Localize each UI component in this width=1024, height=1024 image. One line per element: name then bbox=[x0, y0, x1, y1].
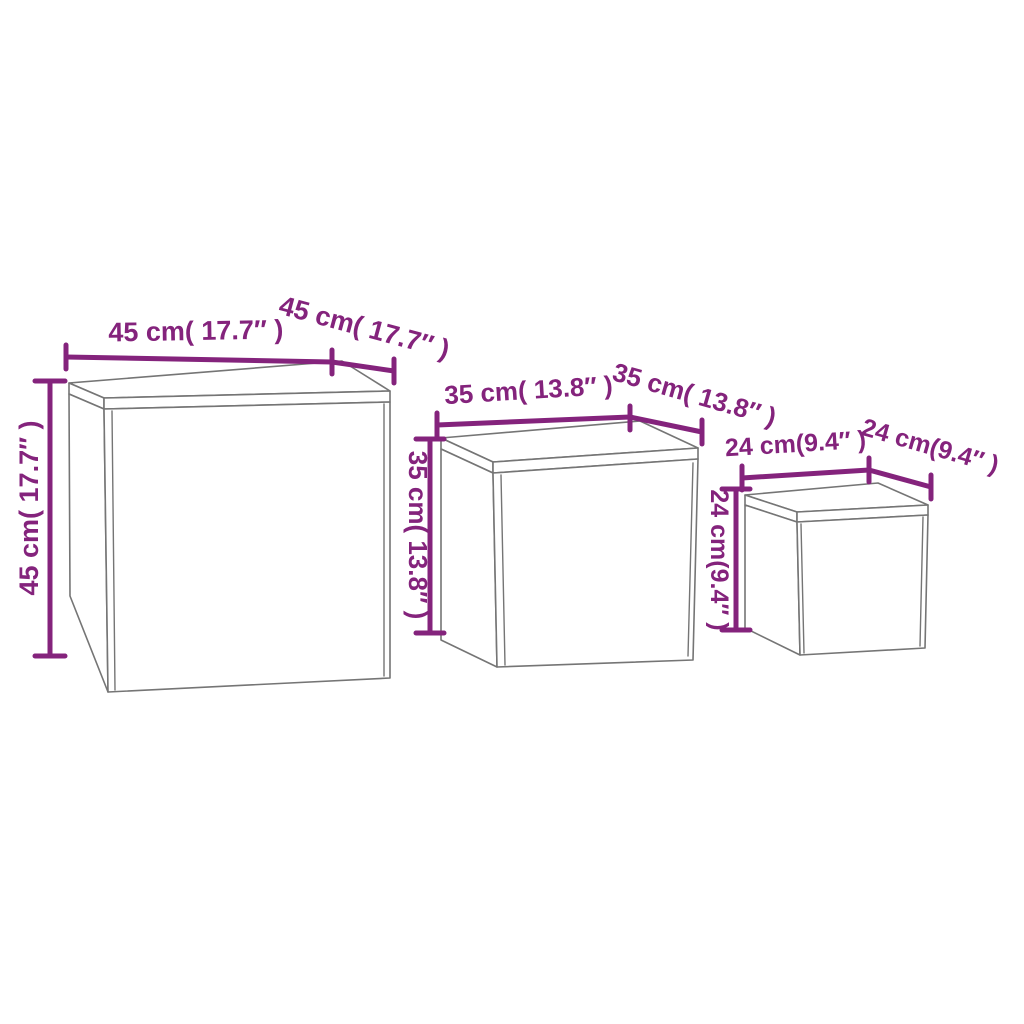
product-dimension-image: 45 cm( 17.7″ ) 45 cm( 17.7″ ) 45 cm( 17.… bbox=[0, 0, 1024, 1024]
small-height-dimension-label: 24 cm(9.4″ ) bbox=[705, 489, 733, 630]
large-table-left-side-face bbox=[69, 394, 108, 692]
medium-table-drawing bbox=[441, 421, 698, 667]
large-table-drawing bbox=[69, 361, 390, 692]
medium-table-left-side-face bbox=[441, 449, 497, 667]
large-width-dimension-label: 45 cm( 17.7″ ) bbox=[108, 314, 284, 347]
medium-width-dimension-label: 35 cm( 13.8″ ) bbox=[443, 370, 613, 410]
small-width-dimension-label: 24 cm(9.4″ ) bbox=[724, 426, 867, 463]
small-table-drawing bbox=[745, 483, 928, 655]
nesting-tables-dimension-diagram: 45 cm( 17.7″ ) 45 cm( 17.7″ ) 45 cm( 17.… bbox=[0, 0, 1024, 1024]
large-table-front-face bbox=[104, 402, 390, 692]
medium-table-front-face bbox=[493, 459, 698, 667]
small-table-front-face bbox=[797, 515, 928, 655]
medium-height-dimension-label: 35 cm( 13.8″ ) bbox=[403, 451, 433, 620]
small-table-left-side-face bbox=[745, 505, 800, 655]
small-depth-dimension-label: 24 cm(9.4″ ) bbox=[858, 413, 1001, 479]
small-width-dimension-line bbox=[742, 470, 869, 478]
large-width-dimension-line bbox=[66, 357, 332, 362]
large-depth-dimension-label: 45 cm( 17.7″ ) bbox=[276, 290, 453, 364]
large-height-dimension-label: 45 cm( 17.7″ ) bbox=[14, 420, 44, 595]
